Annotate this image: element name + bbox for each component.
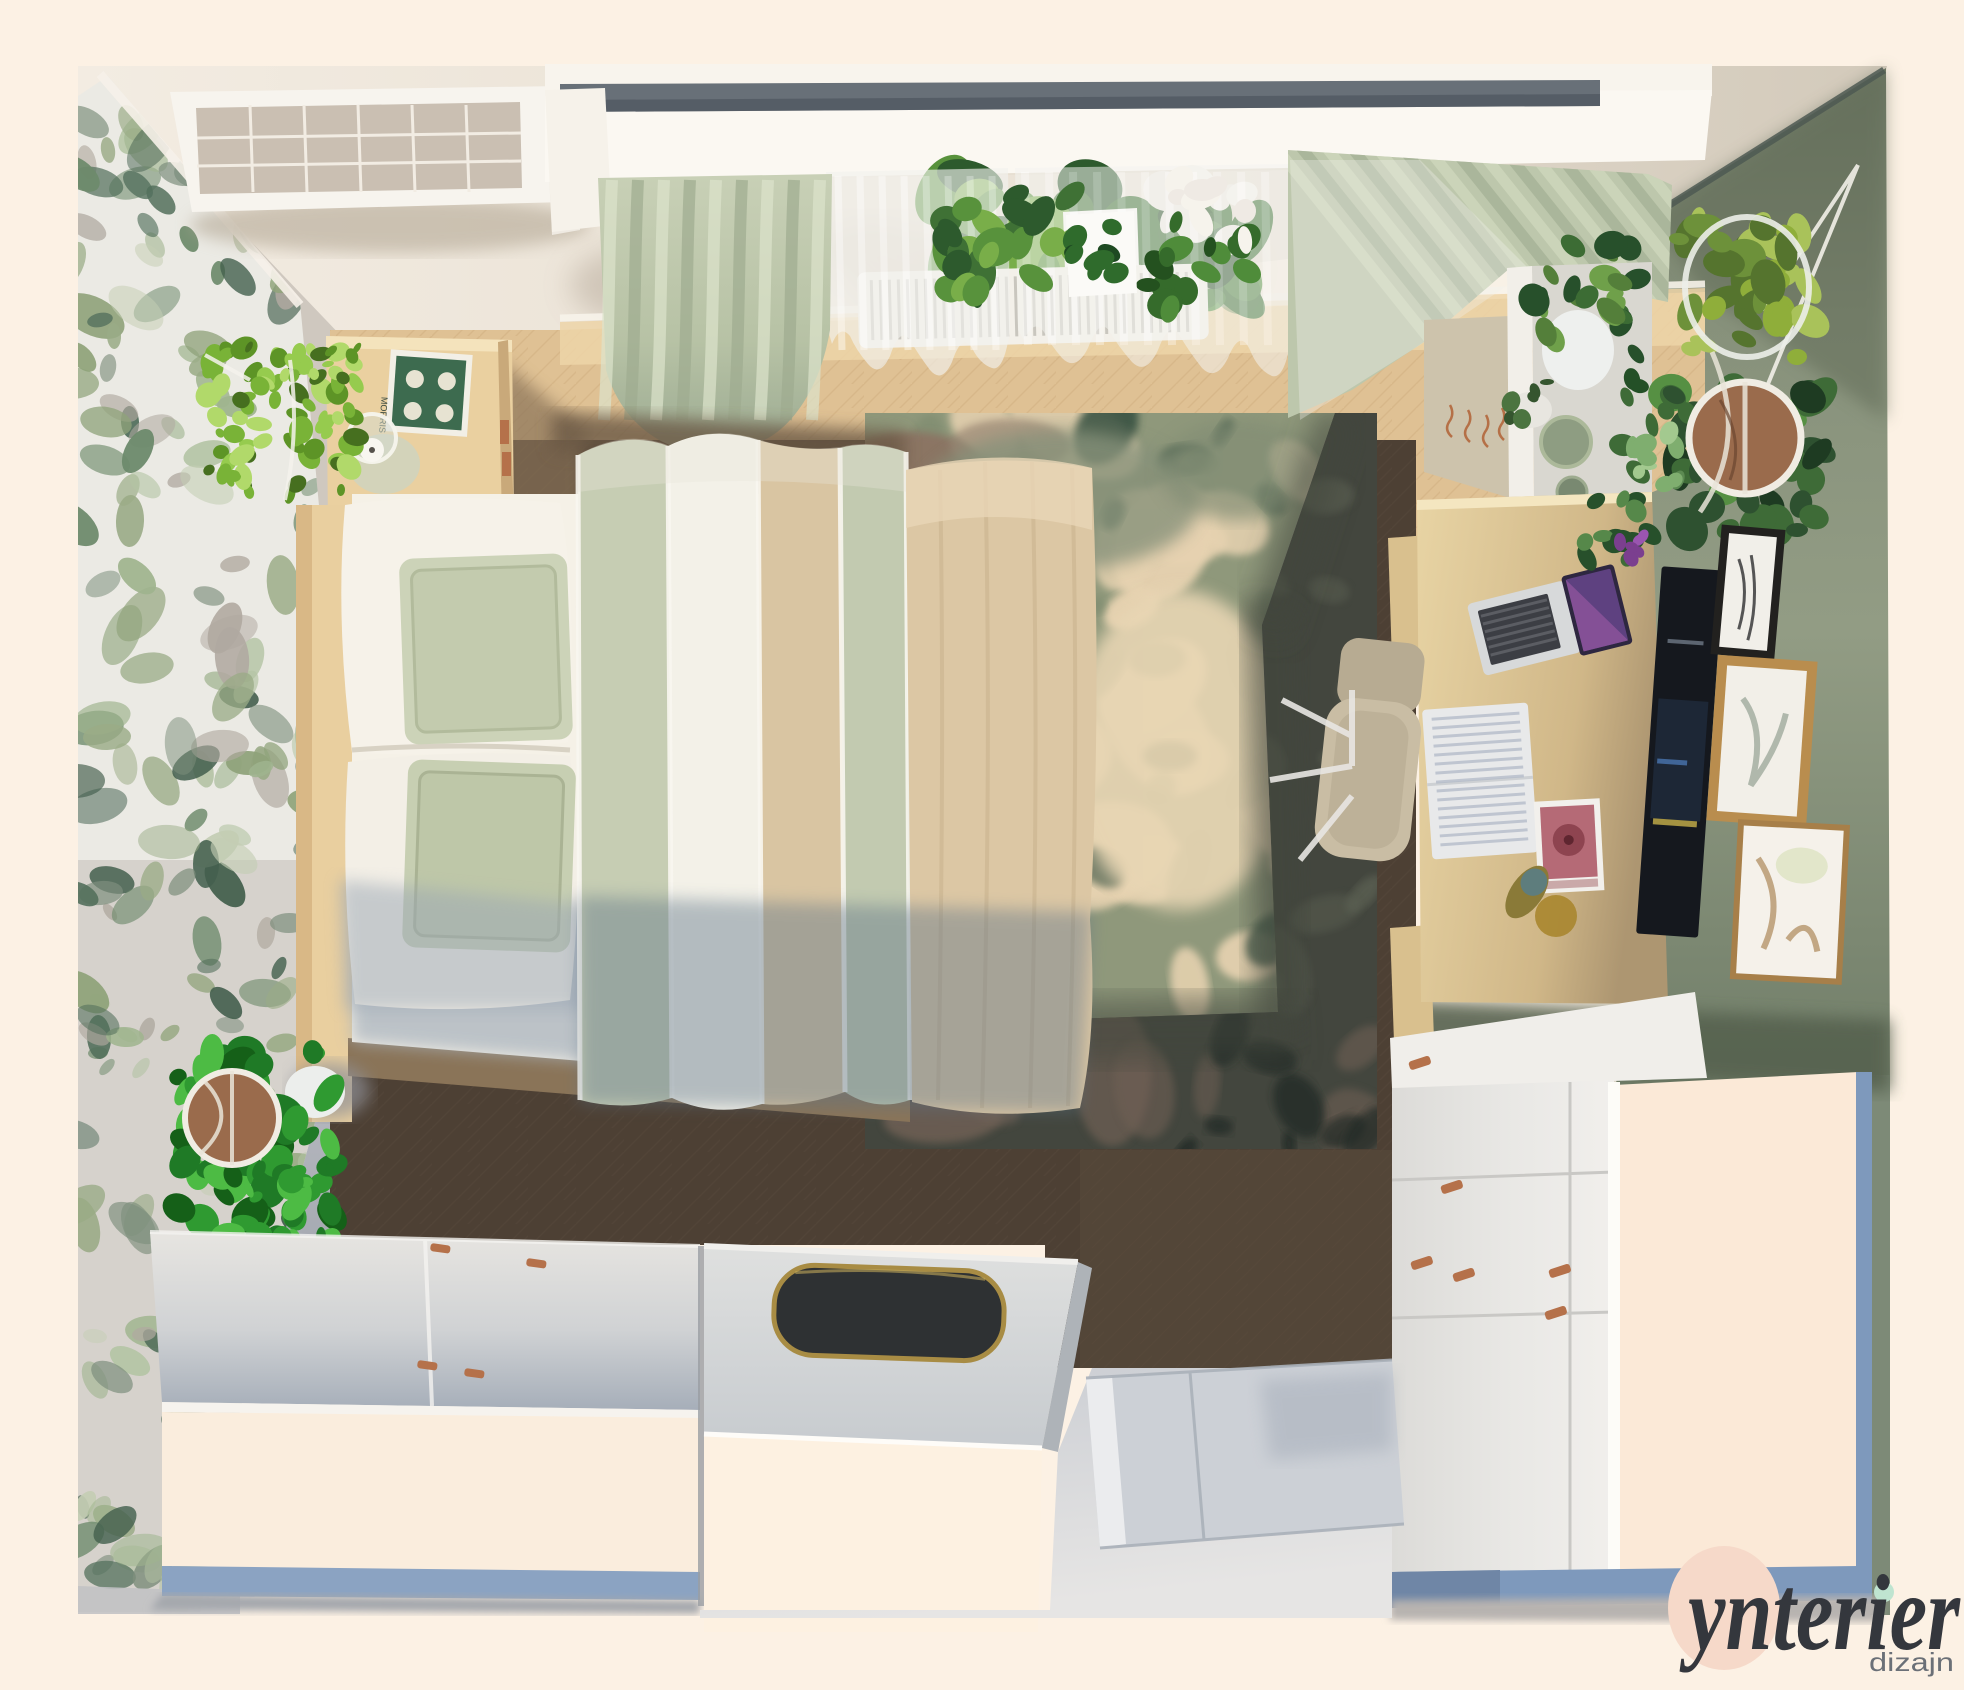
svg-text:dizajn: dizajn <box>1869 1647 1954 1677</box>
